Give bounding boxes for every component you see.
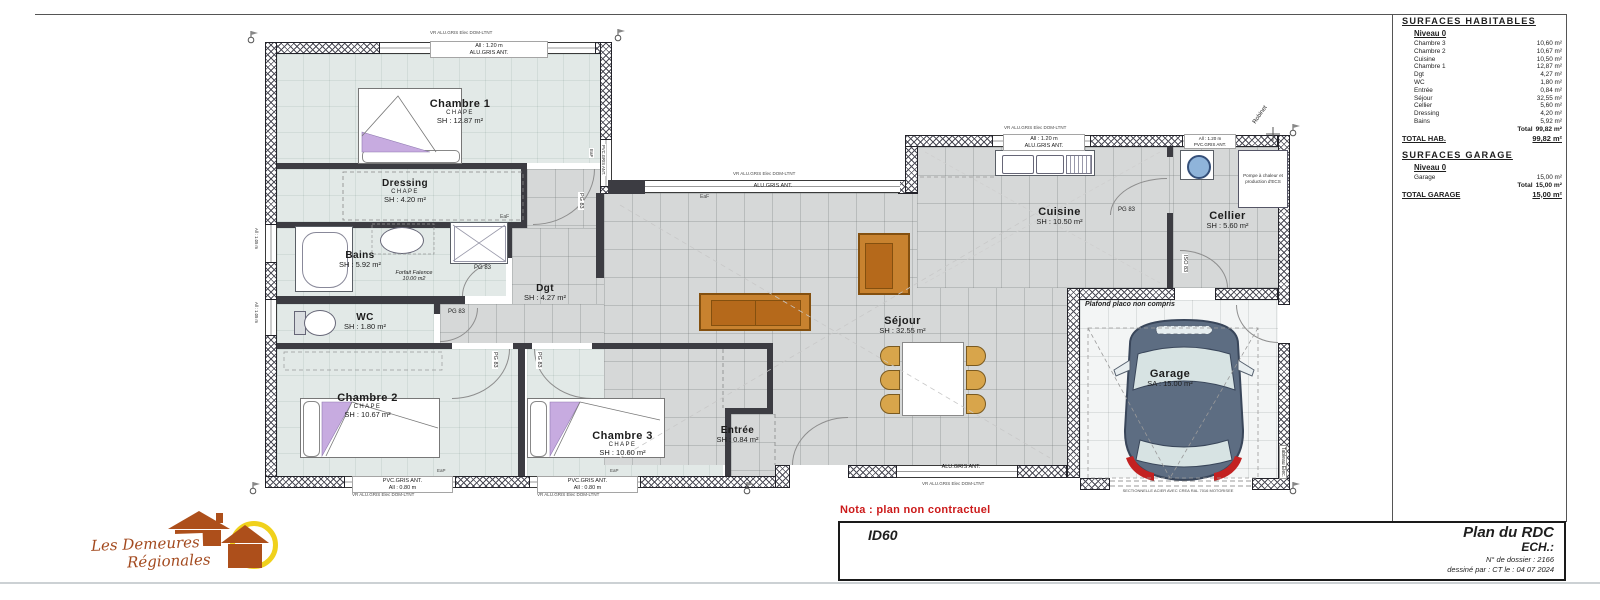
nota-text: Nota : plan non contractuel: [840, 504, 991, 516]
room-name: Chambre 1: [395, 98, 525, 110]
window-label: PVC.GRIS ANT.: [601, 144, 606, 176]
window-label: All : 1.05 m: [254, 301, 259, 324]
surface-value: 4,27 m²: [1540, 71, 1562, 79]
garage-title: SURFACES GARAGE: [1398, 150, 1566, 160]
room-area: SA : 15.00 m²: [1115, 380, 1225, 388]
subtotal-value: 99,82 m²: [1536, 126, 1562, 133]
door-label: ISO 83: [1182, 254, 1188, 273]
window-label: ALU.GRIS ANT.: [920, 463, 1002, 472]
window-type: ALU.GRIS ANT.: [1006, 143, 1082, 150]
floor-plan-sheet: Pompe à chaleur et production d'ECS: [0, 0, 1600, 600]
room-area: SH : 5.60 m²: [1180, 222, 1275, 230]
surface-value: 10,60 m²: [1537, 40, 1562, 48]
utility-label: EaF: [500, 214, 509, 220]
door-label: PG 83: [448, 309, 465, 315]
garage-subtotal: Total15,00 m²: [1398, 182, 1566, 189]
room-label-wc: WC SH : 1.80 m²: [330, 312, 400, 332]
utility-label: EaP: [437, 468, 446, 473]
garage-door-label: SECTIONNELLE ACIER AVEC CREA RAL 7016 MO…: [1098, 488, 1258, 493]
surface-label: Chambre 3: [1414, 40, 1446, 48]
room-name: Chambre 2: [305, 392, 430, 404]
room-area: SH : 0.84 m²: [695, 436, 780, 444]
surfaces-panel: SURFACES HABITABLES Niveau 0 Chambre 310…: [1398, 16, 1566, 199]
title-block: ID60 Plan du RDC ECH.: N° de dossier : 2…: [838, 521, 1566, 581]
surface-row: WC1,80 m²: [1398, 79, 1566, 87]
room-label-chambre2: Chambre 2 CHAPE SH : 10.67 m²: [305, 392, 430, 419]
subtotal-label: Total: [1517, 126, 1532, 133]
surface-row: Chambre 210,67 m²: [1398, 48, 1566, 56]
garage-level: Niveau 0: [1398, 163, 1566, 172]
surface-row: Dressing4,20 m²: [1398, 110, 1566, 118]
drawn-by: dessiné par : CT le : 04 07 2024: [1447, 565, 1554, 575]
project-code: ID60: [868, 527, 898, 543]
window-label: PVC.GRIS ANT. All : 0.80 m: [537, 476, 638, 493]
logo-text-line2: Régionales: [124, 550, 214, 571]
surface-row: Séjour32,55 m²: [1398, 95, 1566, 103]
note-faience: Forfait Faïence 10.00 m2: [378, 270, 450, 282]
utility-label: EaP: [610, 468, 619, 473]
dossier-number: N° de dossier : 2166: [1447, 554, 1554, 565]
surface-label: Dressing: [1414, 110, 1439, 118]
room-label-dgt: Dgt SH : 4.27 m²: [505, 283, 585, 303]
surface-value: 1,80 m²: [1540, 79, 1562, 87]
surface-row: Chambre 310,60 m²: [1398, 40, 1566, 48]
surface-value: 12,87 m²: [1537, 63, 1562, 71]
room-label-cellier: Cellier SH : 5.60 m²: [1180, 210, 1275, 231]
company-logo: Les Demeures Régionales: [78, 505, 298, 583]
shutter-note: VR ALU.GRIS Elec DOM-LTNT: [537, 492, 599, 497]
surface-value: 15,00 m²: [1537, 174, 1562, 182]
window-label: All : 1.20 m ALU.GRIS ANT.: [430, 41, 548, 58]
surface-label: Chambre 2: [1414, 48, 1446, 56]
total-value: 99,82 m²: [1532, 134, 1562, 143]
note-plafond: Plafond placo non compris: [1085, 301, 1175, 308]
utility-label: EaF: [700, 194, 709, 200]
surface-label: Bains: [1414, 118, 1430, 126]
surface-label: Cellier: [1414, 102, 1432, 110]
room-area: SH : 12.87 m²: [395, 117, 525, 125]
plan-title: Plan du RDC: [1447, 525, 1554, 541]
window-label: All : 1.05 m: [254, 227, 259, 250]
title-block-right: Plan du RDC ECH.: N° de dossier : 2166 d…: [1447, 525, 1554, 575]
room-label-chambre3: Chambre 3 CHAPE SH : 10.60 m²: [560, 430, 685, 457]
surface-value: 32,55 m²: [1537, 95, 1562, 103]
room-area: SH : 5.92 m²: [315, 261, 405, 269]
total-label: TOTAL HAB.: [1402, 134, 1446, 143]
room-label-chambre1: Chambre 1 CHAPE SH : 12.87 m²: [395, 98, 525, 125]
surface-value: 10,50 m²: [1537, 56, 1562, 64]
scale-label: ECH.:: [1447, 541, 1554, 554]
room-area: SH : 10.50 m²: [1002, 218, 1117, 226]
note-line: 10.00 m2: [378, 276, 450, 282]
window-label: All : 1.20 m ALU.GRIS ANT.: [1003, 134, 1085, 151]
surface-row: Dgt4,27 m²: [1398, 71, 1566, 79]
room-area: SH : 10.67 m²: [305, 411, 430, 419]
surface-label: Dgt: [1414, 71, 1424, 79]
note-tableau-elec: Tableau Elec.: [1279, 445, 1287, 479]
room-label-bains: Bains SH : 5.92 m²: [315, 250, 405, 270]
surface-label: Chambre 1: [1414, 63, 1446, 71]
shutter-note: VR ALU.GRIS Elec DOM-LTNT: [733, 171, 795, 176]
room-name: Chambre 3: [560, 430, 685, 442]
shutter-note: VR ALU.GRIS Elec DOM-LTNT: [430, 30, 492, 35]
surface-row: Cuisine10,50 m²: [1398, 56, 1566, 64]
shutter-note: VR ALU.GRIS Elec DOM-LTNT: [1004, 125, 1066, 130]
shutter-note: VR ALU.GRIS Elec DOM-LTNT: [922, 481, 984, 486]
surface-row: Entrée0,84 m²: [1398, 87, 1566, 95]
surface-label: WC: [1414, 79, 1425, 87]
room-area: SH : 1.80 m²: [330, 323, 400, 331]
surface-value: 0,84 m²: [1540, 87, 1562, 95]
room-area: SH : 10.60 m²: [560, 449, 685, 457]
surface-value: 4,20 m²: [1540, 110, 1562, 118]
surface-row: Bains5,92 m²: [1398, 118, 1566, 126]
surface-label: Cuisine: [1414, 56, 1435, 64]
window-label: All : 1.20 m PVC.GRIS ANT.: [1184, 134, 1236, 149]
room-label-sejour: Séjour SH : 32.55 m²: [845, 315, 960, 336]
room-label-dressing: Dressing CHAPE SH : 4.20 m²: [340, 178, 470, 204]
utility-label: EaF: [589, 148, 594, 158]
door-label: PG 83: [492, 351, 498, 369]
surface-row: Garage15,00 m²: [1398, 174, 1566, 182]
door-label: PG 83: [474, 265, 491, 271]
window-label: PVC.GRIS ANT. All : 0.80 m: [352, 476, 453, 493]
surfaces-title: SURFACES HABITABLES: [1398, 16, 1566, 26]
door-label: PG 83: [1118, 207, 1135, 213]
room-label-garage: Garage SA : 15.00 m²: [1115, 368, 1225, 389]
surface-row: Cellier5,60 m²: [1398, 102, 1566, 110]
surface-label: Garage: [1414, 174, 1435, 182]
door-label: PG 83: [578, 192, 584, 210]
window-height: All : 0.80 m: [540, 485, 635, 492]
surface-row: Chambre 112,87 m²: [1398, 63, 1566, 71]
room-label-entree: Entrée SH : 0.84 m²: [695, 425, 780, 445]
surface-value: 5,60 m²: [1540, 102, 1562, 110]
surface-label: Entrée: [1414, 87, 1433, 95]
room-name: Dressing: [340, 178, 470, 189]
window-label: ALU.GRIS ANT.: [730, 182, 816, 191]
subtotal-label: Total: [1517, 182, 1532, 189]
surface-label: Séjour: [1414, 95, 1432, 103]
room-area: SH : 32.55 m²: [845, 327, 960, 335]
total-garage: TOTAL GARAGE15,00 m²: [1398, 189, 1566, 199]
room-area: SH : 4.20 m²: [340, 196, 470, 204]
room-area: SH : 4.27 m²: [505, 294, 585, 302]
window-height: All : 0.80 m: [355, 485, 450, 492]
surface-value: 10,67 m²: [1537, 48, 1562, 56]
surfaces-subtotal: Total99,82 m²: [1398, 126, 1566, 133]
surface-value: 5,92 m²: [1540, 118, 1562, 126]
total-label: TOTAL GARAGE: [1402, 190, 1460, 199]
surfaces-total-hab: TOTAL HAB.99,82 m²: [1398, 133, 1566, 143]
door-label: PG 83: [536, 351, 542, 369]
total-value: 15,00 m²: [1532, 190, 1562, 199]
surfaces-level: Niveau 0: [1398, 29, 1566, 38]
shutter-note: VR ALU.GRIS Elec DOM-LTNT: [352, 492, 414, 497]
room-label-cuisine: Cuisine SH : 10.50 m²: [1002, 206, 1117, 227]
window-type: ALU.GRIS ANT.: [433, 50, 545, 57]
window-type: PVC.GRIS ANT.: [1187, 142, 1233, 148]
subtotal-value: 15,00 m²: [1536, 182, 1562, 189]
